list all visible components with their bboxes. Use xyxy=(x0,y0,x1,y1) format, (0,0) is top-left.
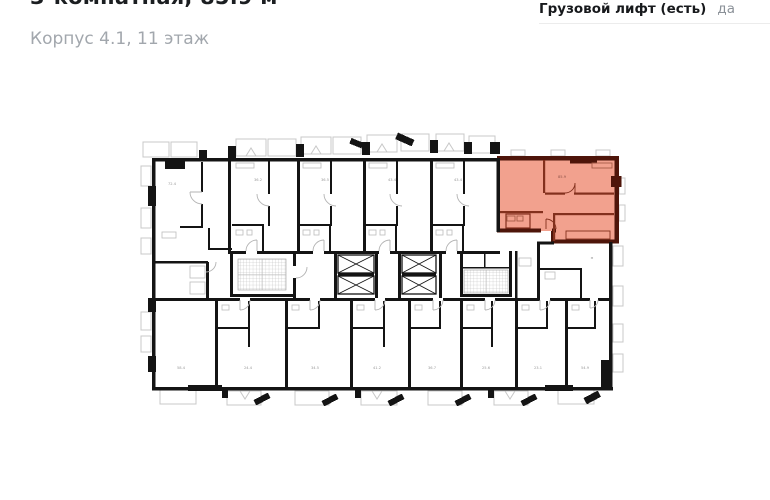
room-label: 72.4 xyxy=(168,182,177,186)
room-label: 36.5 xyxy=(321,178,329,182)
room-label: 58.4 xyxy=(177,366,186,370)
room-label: 23.1 xyxy=(534,366,542,370)
room-label: 54.9 xyxy=(581,366,590,370)
room-label: 43.4 xyxy=(454,178,463,182)
room-label: 34.5 xyxy=(311,366,319,370)
room-label: 41.2 xyxy=(373,366,381,370)
room-label: 36.7 xyxy=(428,366,436,370)
highlighted-apartment[interactable] xyxy=(497,156,622,244)
room-label: 36.2 xyxy=(254,178,262,182)
room-label: м xyxy=(591,256,594,260)
floor-plan: 72.4 36.2 36.5 43.4 43.4 58.4 24.4 34.5 … xyxy=(0,0,770,500)
room-label: 24.4 xyxy=(244,366,253,370)
page: 3-комнатная, 85.9 м² Корпус 4.1, 11 этаж… xyxy=(0,0,770,500)
highlighted-apartment-label: 85.9 xyxy=(558,175,567,179)
room-label: 25.6 xyxy=(482,366,491,370)
room-label: 43.4 xyxy=(388,178,397,182)
